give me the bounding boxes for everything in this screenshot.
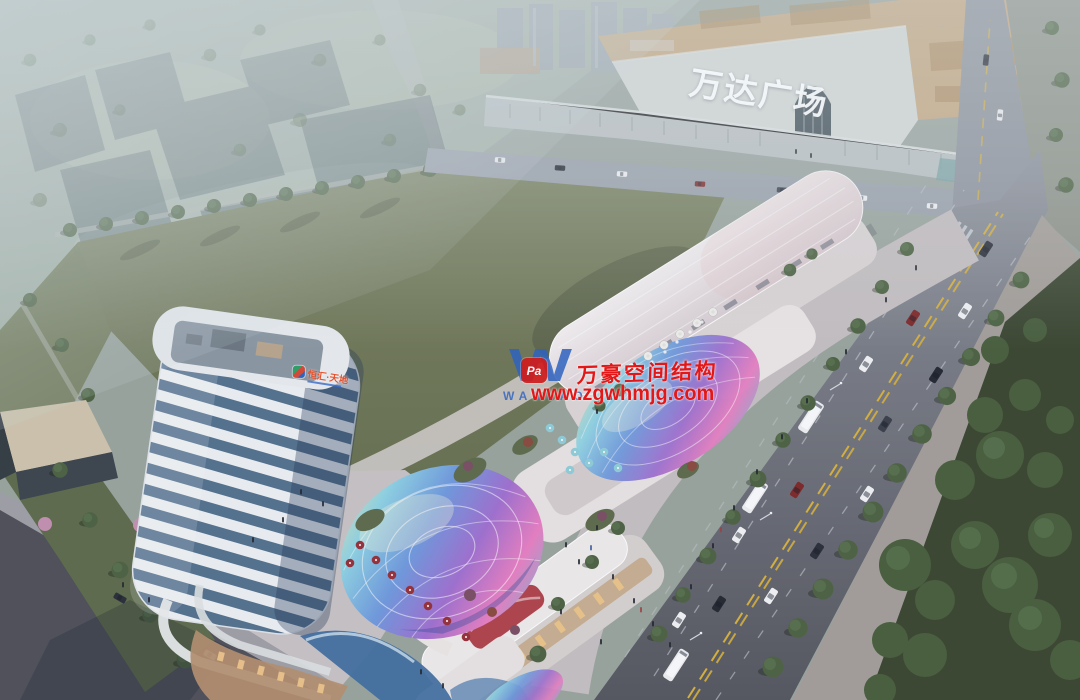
- watermark-seal-text: Pa: [527, 364, 542, 378]
- watermark-website: www.zgwhmjg.com: [531, 382, 714, 406]
- tower-logo-icon: [293, 366, 305, 378]
- watermark-seal-icon: Pa: [521, 358, 547, 383]
- aerial-rendering-scene: 万达广场 恒汇·天地 W Pa WANHAO 万豪空间结构 www.zgwhmj…: [0, 0, 1080, 700]
- watermark: W Pa WANHAO 万豪空间结构 www.zgwhmjg.com: [495, 340, 745, 412]
